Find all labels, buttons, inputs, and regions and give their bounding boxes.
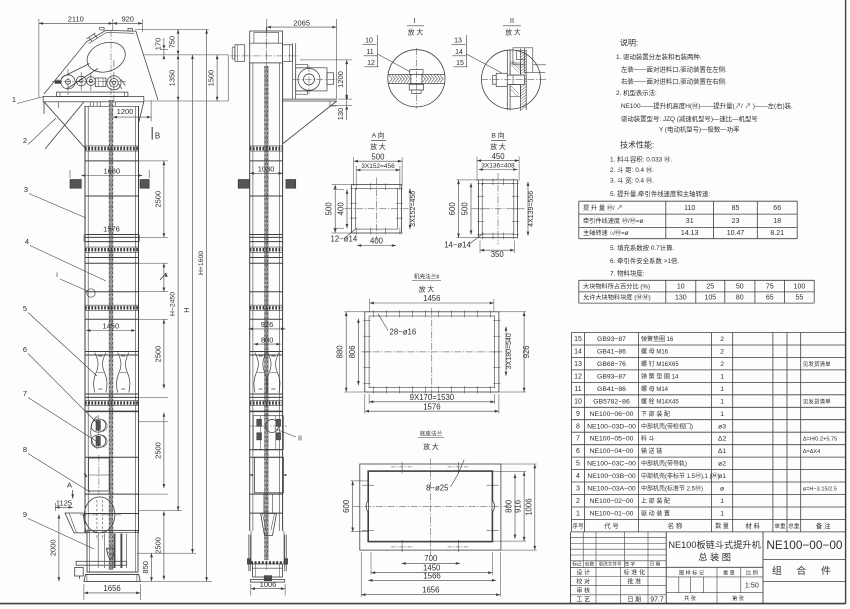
svg-text:1: 1: [720, 511, 724, 518]
svg-text:2110: 2110: [68, 15, 84, 24]
svg-text:500: 500: [325, 202, 334, 216]
svg-text:螺 栓 M14X45: 螺 栓 M14X45: [641, 397, 679, 405]
svg-text:见发货清单: 见发货清单: [803, 360, 831, 368]
svg-text:450: 450: [492, 152, 506, 161]
svg-text:GB93−87: GB93−87: [597, 373, 626, 380]
svg-text:比 例: 比 例: [746, 568, 758, 576]
svg-text:共 张: 共 张: [684, 594, 697, 602]
svg-text:放 大: 放 大: [505, 28, 521, 37]
svg-text:放 大: 放 大: [423, 442, 439, 451]
svg-text:400: 400: [370, 237, 384, 246]
svg-text:NE100−03B−00: NE100−03B−00: [587, 473, 636, 480]
svg-text:单重: 单重: [774, 522, 786, 530]
svg-text:66: 66: [773, 205, 781, 212]
svg-text:ø2: ø2: [718, 461, 726, 468]
svg-text:500: 500: [371, 152, 385, 161]
svg-text:H−2450: H−2450: [170, 292, 177, 316]
svg-text:Δ=ΔX4: Δ=ΔX4: [803, 449, 821, 455]
svg-text:10: 10: [574, 398, 582, 405]
svg-text:6. 牵引件安全系数 >1倍.: 6. 牵引件安全系数 >1倍.: [610, 256, 679, 265]
svg-text:设 计: 设 计: [576, 568, 590, 576]
svg-text:代 号: 代 号: [604, 521, 619, 530]
svg-text:1566: 1566: [423, 571, 440, 580]
svg-text:NE100−05−00: NE100−05−00: [590, 436, 634, 443]
svg-text:大块物料所占百分比 (%): 大块物料所占百分比 (%): [583, 282, 650, 290]
svg-text:GB41−86: GB41−86: [597, 386, 626, 393]
svg-text:3: 3: [24, 185, 28, 194]
svg-text:1:50: 1:50: [745, 580, 759, 589]
svg-text:2000: 2000: [48, 539, 57, 556]
svg-text:31: 31: [686, 218, 694, 225]
svg-text:右装——面对进料口,驱动装置在右侧.: 右装——面对进料口,驱动装置在右侧.: [621, 77, 727, 86]
svg-text:驱 动 装 置: 驱 动 装 置: [641, 510, 670, 518]
svg-text:下 部 装 配: 下 部 装 配: [641, 410, 670, 418]
svg-text:13: 13: [454, 38, 462, 45]
svg-text:2500: 2500: [153, 537, 162, 554]
svg-text:15: 15: [574, 336, 582, 343]
svg-text:螺 母 M14: 螺 母 M14: [641, 385, 669, 393]
svg-text:1656: 1656: [422, 586, 439, 595]
svg-text:NE100−03D−00: NE100−03D−00: [587, 423, 636, 430]
svg-text:2500: 2500: [153, 346, 162, 363]
svg-text:B: B: [155, 132, 160, 141]
svg-text:机壳法兰Ⅱ: 机壳法兰Ⅱ: [414, 273, 439, 281]
svg-text:7: 7: [23, 389, 27, 398]
svg-text:说明:: 说明:: [620, 38, 638, 48]
svg-text:2500: 2500: [153, 442, 162, 459]
svg-text:13: 13: [574, 361, 582, 368]
svg-text:920: 920: [121, 15, 134, 24]
svg-text:2: 2: [720, 336, 724, 343]
svg-text:750: 750: [168, 36, 177, 49]
svg-text:3X152=456: 3X152=456: [361, 163, 395, 170]
svg-text:80: 80: [736, 295, 744, 302]
svg-text:备 注: 备 注: [816, 521, 831, 530]
svg-text:806: 806: [348, 345, 357, 358]
svg-text:110: 110: [684, 205, 695, 212]
svg-text:Y (电动机型号)—极数—功率: Y (电动机型号)—极数—功率: [659, 125, 740, 134]
svg-text:1200: 1200: [336, 71, 345, 88]
svg-text:916: 916: [514, 500, 523, 513]
svg-text:850: 850: [141, 561, 150, 574]
svg-text:1125: 1125: [56, 499, 72, 508]
svg-text:材 料: 材 料: [746, 521, 761, 530]
svg-text:GB41−86: GB41−86: [597, 349, 626, 356]
svg-text:14.13: 14.13: [681, 230, 699, 237]
svg-text:1350: 1350: [168, 70, 177, 87]
svg-text:标记: 标记: [572, 561, 582, 568]
svg-text:签 字: 签 字: [625, 561, 636, 567]
svg-text:驱动装置型号: JZQ (减速机型号)—速比—机型号: 驱动装置型号: JZQ (减速机型号)—速比—机型号: [621, 114, 758, 123]
svg-text:50: 50: [736, 283, 744, 290]
svg-text:NE100——提升机高度H(Ⓜ)——提升量(↗/ ↗ )—: NE100——提升机高度H(Ⓜ)——提升量(↗/ ↗ )——左(右)装.: [621, 101, 793, 110]
svg-text:7. 物料块度:: 7. 物料块度:: [610, 269, 645, 278]
svg-text:400: 400: [337, 202, 346, 216]
svg-text:1. 料斗容积: 0.033 Ⓜ.: 1. 料斗容积: 0.033 Ⓜ.: [610, 155, 672, 164]
svg-text:18: 18: [773, 218, 781, 225]
svg-text:输 送 链: 输 送 链: [641, 447, 662, 455]
svg-text:2. 机型表示法:: 2. 机型表示法:: [616, 88, 657, 97]
svg-text:1680: 1680: [103, 167, 120, 176]
svg-text:130: 130: [336, 108, 345, 121]
svg-text:5. 提升量,牵引件线速度和主轴转速:: 5. 提升量,牵引件线速度和主轴转速:: [610, 189, 710, 198]
svg-text:工 艺: 工 艺: [576, 596, 590, 604]
svg-text:NE100−00−00: NE100−00−00: [766, 538, 843, 552]
svg-text:3X136=408: 3X136=408: [481, 163, 515, 170]
svg-text:14: 14: [455, 49, 463, 56]
svg-text:见发货清单: 见发货清单: [803, 397, 831, 405]
svg-text:75: 75: [766, 283, 774, 290]
svg-text:8: 8: [576, 423, 580, 430]
svg-text:审 核: 审 核: [576, 587, 590, 595]
svg-text:1: 1: [720, 386, 724, 393]
svg-text:NE100板链斗式提升机: NE100板链斗式提升机: [668, 539, 760, 550]
svg-text:H+1600: H+1600: [198, 251, 205, 275]
svg-text:12: 12: [574, 373, 582, 380]
svg-text:A: A: [67, 481, 72, 490]
svg-text:放 大: 放 大: [419, 285, 435, 294]
svg-text:放 大: 放 大: [490, 142, 506, 151]
svg-text:A 向: A 向: [372, 131, 385, 140]
svg-text:9: 9: [576, 411, 580, 418]
svg-text:1450: 1450: [102, 322, 119, 331]
svg-text:8−ø25: 8−ø25: [426, 484, 449, 493]
svg-text:97.7: 97.7: [650, 597, 664, 604]
svg-text:H: H: [182, 307, 191, 312]
svg-text:中部机壳(标准节 2.5Ⓜ): 中部机壳(标准节 2.5Ⓜ): [641, 485, 703, 493]
svg-text:2: 2: [23, 136, 27, 145]
svg-text:弹 簧 垫 圈 14: 弹 簧 垫 圈 14: [641, 372, 679, 380]
svg-text:6: 6: [576, 448, 580, 455]
svg-text:3: 3: [576, 486, 580, 493]
svg-text:4X139=556: 4X139=556: [528, 191, 535, 227]
svg-text:2065: 2065: [293, 18, 310, 27]
svg-text:弹簧垫圈 16: 弹簧垫圈 16: [641, 335, 674, 343]
svg-text:Δ=H/0.2+5.75: Δ=H/0.2+5.75: [803, 437, 838, 443]
svg-text:中部机壳(带检视门): 中部机壳(带检视门): [641, 422, 693, 430]
svg-text:中部机壳(带导轨): 中部机壳(带导轨): [641, 460, 687, 468]
svg-text:65: 65: [766, 295, 774, 302]
svg-text:55: 55: [796, 295, 804, 302]
svg-text:7: 7: [576, 436, 580, 443]
svg-text:4: 4: [576, 473, 580, 480]
svg-text:日 期: 日 期: [627, 596, 641, 604]
svg-text:处数: 处数: [585, 561, 595, 568]
svg-text:放 大: 放 大: [370, 142, 386, 151]
svg-text:名 称: 名 称: [668, 521, 683, 530]
svg-text:105: 105: [704, 295, 716, 302]
svg-text:Δ2: Δ2: [718, 436, 727, 443]
svg-text:28−ø16: 28−ø16: [390, 328, 417, 337]
svg-text:1576: 1576: [103, 225, 120, 234]
svg-text:1. 驱动装置分左装和右装两种.: 1. 驱动装置分左装和右装两种.: [616, 52, 702, 61]
svg-text:3X180=540: 3X180=540: [506, 333, 513, 369]
svg-text:1656: 1656: [103, 584, 120, 593]
svg-text:放 大: 放 大: [408, 28, 424, 37]
svg-text:上 部 装 配: 上 部 装 配: [641, 497, 670, 505]
svg-text:I: I: [413, 16, 415, 25]
svg-text:10.47: 10.47: [727, 230, 745, 237]
svg-text:I: I: [56, 272, 58, 279]
svg-text:9: 9: [23, 510, 27, 519]
svg-text:800: 800: [261, 335, 274, 344]
svg-text:1200: 1200: [117, 107, 134, 116]
svg-text:1006: 1006: [524, 498, 533, 515]
svg-text:NE100−03C−00: NE100−03C−00: [587, 461, 636, 468]
svg-text:螺 母 M16: 螺 母 M16: [641, 348, 669, 356]
svg-text:左装——面对进料口,驱动装置在左侧.: 左装——面对进料口,驱动装置在左侧.: [621, 65, 727, 74]
svg-text:NE100−03A−00: NE100−03A−00: [587, 486, 636, 493]
svg-text:允许大块物料块度 (ⓂⓂ): 允许大块物料块度 (ⓂⓂ): [583, 294, 651, 302]
svg-text:1576: 1576: [423, 402, 440, 411]
svg-text:600: 600: [342, 499, 351, 513]
svg-text:第 张: 第 张: [732, 594, 745, 602]
svg-text:底座法兰: 底座法兰: [420, 430, 443, 438]
svg-text:1: 1: [720, 398, 724, 405]
svg-text:14−ø14: 14−ø14: [444, 240, 471, 249]
svg-text:880: 880: [336, 345, 345, 359]
svg-text:10: 10: [677, 283, 685, 290]
svg-text:2: 2: [720, 361, 724, 368]
svg-text:4: 4: [25, 237, 29, 246]
svg-text:1500: 1500: [206, 70, 215, 87]
svg-text:6: 6: [23, 345, 27, 354]
svg-text:9X170=1530: 9X170=1530: [410, 393, 455, 402]
svg-text:技术性能:: 技术性能:: [620, 140, 654, 150]
svg-text:12−ø14: 12−ø14: [331, 235, 358, 244]
svg-text:1030: 1030: [258, 165, 275, 174]
svg-text:2500: 2500: [153, 191, 162, 208]
svg-text:10: 10: [365, 38, 373, 45]
svg-text:螺 钉 M16X65: 螺 钉 M16X65: [641, 360, 679, 368]
svg-text:1: 1: [12, 95, 16, 104]
svg-text:1: 1: [720, 373, 724, 380]
svg-text:校 对: 校 对: [576, 577, 590, 585]
svg-text:11: 11: [366, 49, 373, 56]
svg-text:NE100−06−00: NE100−06−00: [590, 411, 634, 418]
svg-text:3. 斗 宽: 0.4 Ⓜ.: 3. 斗 宽: 0.4 Ⓜ.: [610, 176, 654, 185]
svg-text:II: II: [298, 436, 302, 443]
svg-text:序号: 序号: [572, 522, 584, 530]
svg-text:II: II: [510, 16, 514, 25]
svg-text:23: 23: [732, 218, 740, 225]
svg-text:GB68−76: GB68−76: [597, 361, 626, 368]
svg-text:700: 700: [424, 554, 438, 563]
svg-text:15: 15: [456, 60, 464, 67]
svg-text:1: 1: [576, 511, 580, 518]
svg-text:5. 填充系数按 0.7计算.: 5. 填充系数按 0.7计算.: [610, 243, 674, 252]
svg-text:14: 14: [574, 349, 582, 356]
svg-text:5: 5: [576, 461, 580, 468]
svg-text:1: 1: [720, 411, 724, 418]
svg-text:批 准: 批 准: [627, 577, 641, 585]
svg-text:926: 926: [261, 320, 274, 329]
svg-text:2: 2: [720, 349, 724, 356]
svg-text:ø3: ø3: [718, 423, 726, 430]
svg-text:料 斗: 料 斗: [641, 435, 655, 443]
svg-text:3X152=456: 3X152=456: [410, 191, 417, 227]
svg-text:图 样 标 记: 图 样 标 记: [679, 568, 704, 576]
svg-text:重 量: 重 量: [723, 568, 735, 576]
svg-text:总重: 总重: [788, 522, 800, 530]
svg-text:2: 2: [576, 498, 580, 505]
svg-text:8.21: 8.21: [770, 230, 784, 237]
svg-text:800: 800: [505, 499, 514, 513]
svg-text:11: 11: [574, 386, 581, 393]
svg-text:85: 85: [732, 205, 740, 212]
svg-text:GB93−87: GB93−87: [597, 336, 626, 343]
svg-text:12: 12: [367, 60, 375, 67]
svg-text:ø: ø: [720, 486, 724, 493]
svg-text:主轴转速 ○/Ⓜ=ø: 主轴转速 ○/Ⓜ=ø: [583, 229, 629, 237]
svg-text:2. 斗 距: 0.4 Ⓜ.: 2. 斗 距: 0.4 Ⓜ.: [610, 166, 654, 174]
svg-text:B 向: B 向: [491, 131, 504, 140]
svg-text:Δ1: Δ1: [718, 448, 727, 455]
svg-text:牵引件线速度 Ⓜ/Ⓜ=ø: 牵引件线速度 Ⓜ/Ⓜ=ø: [583, 217, 644, 225]
svg-text:NE100−02−00: NE100−02−00: [590, 498, 634, 505]
svg-text:NE100−04−00: NE100−04−00: [590, 448, 634, 455]
svg-text:1: 1: [720, 498, 724, 505]
svg-text:组 合 件: 组 合 件: [772, 564, 837, 577]
svg-text:GB5782−86: GB5782−86: [593, 398, 630, 405]
svg-text:数 量: 数 量: [715, 522, 729, 530]
svg-text:更改文件号: 更改文件号: [599, 561, 622, 568]
svg-text:100: 100: [794, 283, 806, 290]
svg-text:NE100−01−00: NE100−01−00: [590, 511, 634, 518]
svg-text:350: 350: [491, 250, 505, 259]
svg-text:5: 5: [23, 304, 27, 313]
svg-text:ø1: ø1: [718, 473, 726, 480]
svg-text:25: 25: [706, 283, 714, 290]
svg-text:600: 600: [448, 202, 457, 216]
svg-text:170: 170: [153, 38, 162, 51]
svg-text:1456: 1456: [423, 294, 440, 303]
svg-text:中部机壳(非标节 1.5Ⓜ),1 (Ⓜ): 中部机壳(非标节 1.5Ⓜ),1 (Ⓜ): [641, 472, 720, 480]
svg-text:ø=H−3.15/2.5: ø=H−3.15/2.5: [803, 487, 837, 493]
svg-text:总 装 图: 总 装 图: [698, 551, 731, 562]
svg-text:提 升 量 Ⓜ/ ↗: 提 升 量 Ⓜ/ ↗: [583, 204, 623, 212]
svg-text:500: 500: [461, 202, 470, 216]
svg-text:130: 130: [675, 295, 687, 302]
svg-text:标 准 化: 标 准 化: [624, 568, 645, 576]
svg-text:1006: 1006: [260, 580, 277, 589]
svg-text:926: 926: [522, 345, 531, 358]
svg-text:8: 8: [23, 445, 27, 454]
